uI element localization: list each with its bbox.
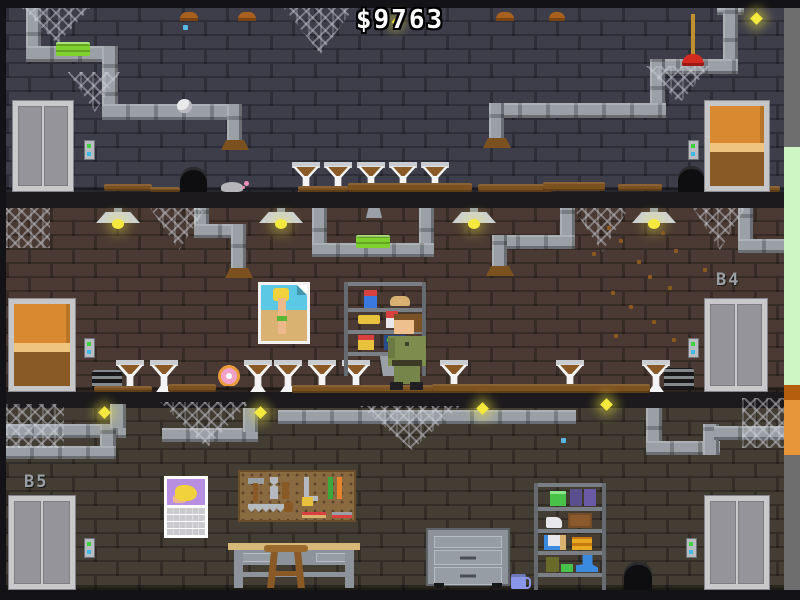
elevator-door bbox=[737, 304, 762, 386]
pipe-segment bbox=[227, 104, 242, 144]
shelf-board bbox=[348, 282, 422, 286]
calendar-image bbox=[167, 479, 205, 505]
dirt-patch[interactable] bbox=[478, 184, 552, 192]
mug[interactable] bbox=[511, 574, 526, 589]
tool-pegboard bbox=[238, 470, 356, 522]
brush-icon[interactable] bbox=[302, 512, 326, 518]
bottom-bar bbox=[0, 590, 800, 600]
calendar-grid bbox=[167, 508, 205, 535]
elevator-call-button[interactable] bbox=[84, 538, 95, 558]
elevator-b5-left[interactable] bbox=[8, 495, 76, 590]
purple-box bbox=[570, 489, 582, 506]
game-screen: $9763 B4 B5 bbox=[0, 0, 800, 600]
pipe-segment bbox=[102, 104, 242, 120]
workbench-leg bbox=[234, 550, 243, 588]
workbench-leg bbox=[345, 550, 354, 588]
pipe-segment bbox=[110, 404, 126, 428]
mouse[interactable] bbox=[221, 177, 251, 192]
shelf-board bbox=[538, 483, 602, 487]
shelf-board bbox=[538, 573, 602, 577]
elevator-b5-right[interactable] bbox=[704, 495, 770, 590]
hanging-lamp bbox=[452, 208, 496, 230]
fly bbox=[619, 239, 623, 243]
elevator-call-button[interactable] bbox=[84, 338, 95, 358]
hanging-lamp bbox=[259, 208, 303, 230]
yellow-box bbox=[572, 537, 592, 550]
plunger[interactable] bbox=[682, 14, 704, 66]
hanging-lamp bbox=[632, 208, 676, 230]
door-kickplate bbox=[710, 143, 764, 152]
dirt-patch[interactable] bbox=[432, 384, 650, 393]
pipe-segment bbox=[489, 103, 504, 142]
wrench-icon[interactable] bbox=[270, 477, 278, 499]
fly bbox=[648, 275, 652, 279]
door-panel-lower bbox=[14, 352, 70, 386]
shelf-board bbox=[538, 507, 602, 511]
elevator-call-button[interactable] bbox=[686, 538, 697, 558]
green-caps bbox=[561, 564, 573, 572]
side-column-concrete bbox=[784, 8, 800, 147]
hat[interactable] bbox=[390, 296, 410, 306]
cobweb[interactable] bbox=[6, 404, 64, 448]
fly bbox=[637, 260, 641, 264]
yellow-sponge[interactable] bbox=[302, 497, 313, 506]
dirt-patch[interactable] bbox=[94, 386, 152, 392]
floor-divider bbox=[0, 192, 800, 208]
fly bbox=[668, 286, 672, 290]
pipe-segment bbox=[492, 235, 507, 269]
white-shoe bbox=[546, 517, 562, 528]
elevator-call-button[interactable] bbox=[84, 140, 95, 160]
mouse-hole bbox=[624, 562, 652, 590]
storage-shelf bbox=[534, 483, 606, 590]
dirt-patch[interactable] bbox=[298, 186, 348, 192]
shelf-board bbox=[538, 551, 602, 555]
dirt-patch[interactable] bbox=[150, 187, 180, 192]
shelf-board bbox=[538, 529, 602, 533]
cobweb[interactable] bbox=[6, 208, 50, 248]
player-shoe bbox=[390, 382, 403, 390]
side-column-concrete bbox=[784, 455, 800, 590]
elevator-door bbox=[738, 501, 764, 584]
player-face bbox=[394, 320, 414, 334]
fly bbox=[614, 334, 618, 338]
elevator-door bbox=[14, 501, 41, 584]
poster-figure bbox=[277, 316, 287, 321]
saw-icon[interactable] bbox=[248, 504, 284, 512]
pinup-calendar[interactable] bbox=[164, 476, 208, 538]
spray-bottle-blue[interactable] bbox=[364, 290, 377, 308]
workbench-drawer[interactable] bbox=[316, 553, 346, 562]
pipe-segment bbox=[723, 8, 738, 66]
green-box bbox=[550, 491, 566, 506]
elevator-door bbox=[44, 106, 68, 186]
ceiling-cap bbox=[549, 12, 565, 21]
drawer-handle bbox=[460, 575, 476, 578]
elevator-door bbox=[710, 501, 736, 584]
fly bbox=[592, 252, 596, 256]
pipe-segment bbox=[560, 208, 575, 238]
player-arm bbox=[388, 338, 395, 358]
elevator-door bbox=[43, 501, 70, 584]
yellow-sponges[interactable] bbox=[358, 315, 380, 324]
door-panel bbox=[14, 304, 70, 343]
floor-label-b5: B5 bbox=[24, 472, 48, 492]
pipe-segment bbox=[231, 224, 246, 272]
cabinet-drawer[interactable] bbox=[434, 536, 502, 548]
white-box bbox=[544, 535, 566, 550]
elevator-top-left[interactable] bbox=[12, 100, 74, 192]
spray-bottle-yellow[interactable] bbox=[358, 335, 374, 350]
paper-ball[interactable] bbox=[177, 99, 192, 113]
scraper-icon[interactable] bbox=[332, 512, 352, 518]
door-panel bbox=[710, 106, 764, 143]
mallet-icon[interactable] bbox=[282, 482, 289, 499]
shelf-board bbox=[348, 308, 422, 312]
fly bbox=[661, 231, 665, 235]
elevator-call-button[interactable] bbox=[688, 338, 699, 358]
wooden-door-top-right[interactable] bbox=[704, 100, 770, 192]
door-kickplate bbox=[14, 343, 70, 352]
elevator-door bbox=[710, 304, 735, 386]
mouse-hole bbox=[678, 166, 705, 192]
pipe-segment bbox=[494, 103, 666, 118]
blue-speck bbox=[561, 438, 566, 443]
brown-box bbox=[568, 513, 592, 528]
dirty-urinal[interactable] bbox=[244, 360, 272, 392]
left-bar bbox=[0, 0, 6, 600]
fly bbox=[703, 268, 707, 272]
blue-speck bbox=[183, 25, 188, 30]
door-panel-lower bbox=[710, 152, 764, 186]
cobweb[interactable] bbox=[742, 398, 784, 448]
cabinet-drawer[interactable] bbox=[434, 550, 502, 565]
green-sponge[interactable] bbox=[356, 235, 390, 248]
cabinet-wheel bbox=[492, 583, 502, 588]
screwdriver-orange-icon[interactable] bbox=[337, 477, 342, 499]
side-column-soil-dark bbox=[784, 385, 800, 400]
donut[interactable] bbox=[216, 364, 242, 386]
elevator-b4-right[interactable] bbox=[704, 298, 768, 392]
stool-crossbar bbox=[271, 571, 301, 576]
dirt-patch[interactable] bbox=[104, 184, 152, 191]
elevator-door bbox=[18, 106, 42, 186]
rolling-cabinet[interactable] bbox=[426, 528, 510, 586]
player-button bbox=[405, 342, 409, 346]
fly bbox=[611, 291, 615, 295]
stool[interactable] bbox=[264, 545, 308, 588]
purple-box bbox=[584, 489, 596, 506]
dirt-patch[interactable] bbox=[543, 182, 605, 191]
hanging-lamp bbox=[96, 208, 140, 230]
elevator-call-button[interactable] bbox=[688, 140, 699, 160]
saw-handle bbox=[284, 502, 293, 512]
dirt-patch[interactable] bbox=[168, 384, 216, 392]
janitor-player[interactable] bbox=[388, 314, 426, 390]
floor-grate bbox=[664, 368, 694, 390]
wooden-door-b4-left[interactable] bbox=[8, 298, 76, 392]
money-counter: $9763 bbox=[250, 5, 550, 35]
screwdriver-green-icon[interactable] bbox=[328, 477, 333, 499]
pinup-poster[interactable] bbox=[258, 282, 310, 344]
stool-leg bbox=[267, 552, 278, 588]
player-shoe bbox=[410, 382, 423, 390]
blue-boot bbox=[576, 555, 598, 572]
fly bbox=[672, 338, 676, 342]
side-column-soil bbox=[784, 400, 800, 455]
hammer-handle bbox=[253, 483, 258, 502]
drawer-handle bbox=[460, 556, 476, 559]
pipe-segment bbox=[738, 239, 784, 253]
dirt-patch[interactable] bbox=[348, 183, 472, 192]
fly bbox=[652, 320, 656, 324]
side-column-green bbox=[784, 147, 800, 385]
cabinet-wheel bbox=[434, 583, 444, 588]
bottles bbox=[546, 557, 559, 572]
dirt-patch[interactable] bbox=[618, 184, 662, 191]
stool-leg bbox=[294, 552, 305, 588]
fly bbox=[607, 226, 611, 230]
ceiling-cap bbox=[180, 12, 198, 21]
fly bbox=[674, 249, 678, 253]
fly bbox=[629, 305, 633, 309]
stool-seat bbox=[264, 545, 308, 552]
green-sponge[interactable] bbox=[56, 42, 90, 56]
ceiling-mount bbox=[366, 208, 382, 218]
mouse-hole bbox=[180, 167, 207, 192]
floor-label-b4: B4 bbox=[716, 270, 740, 290]
